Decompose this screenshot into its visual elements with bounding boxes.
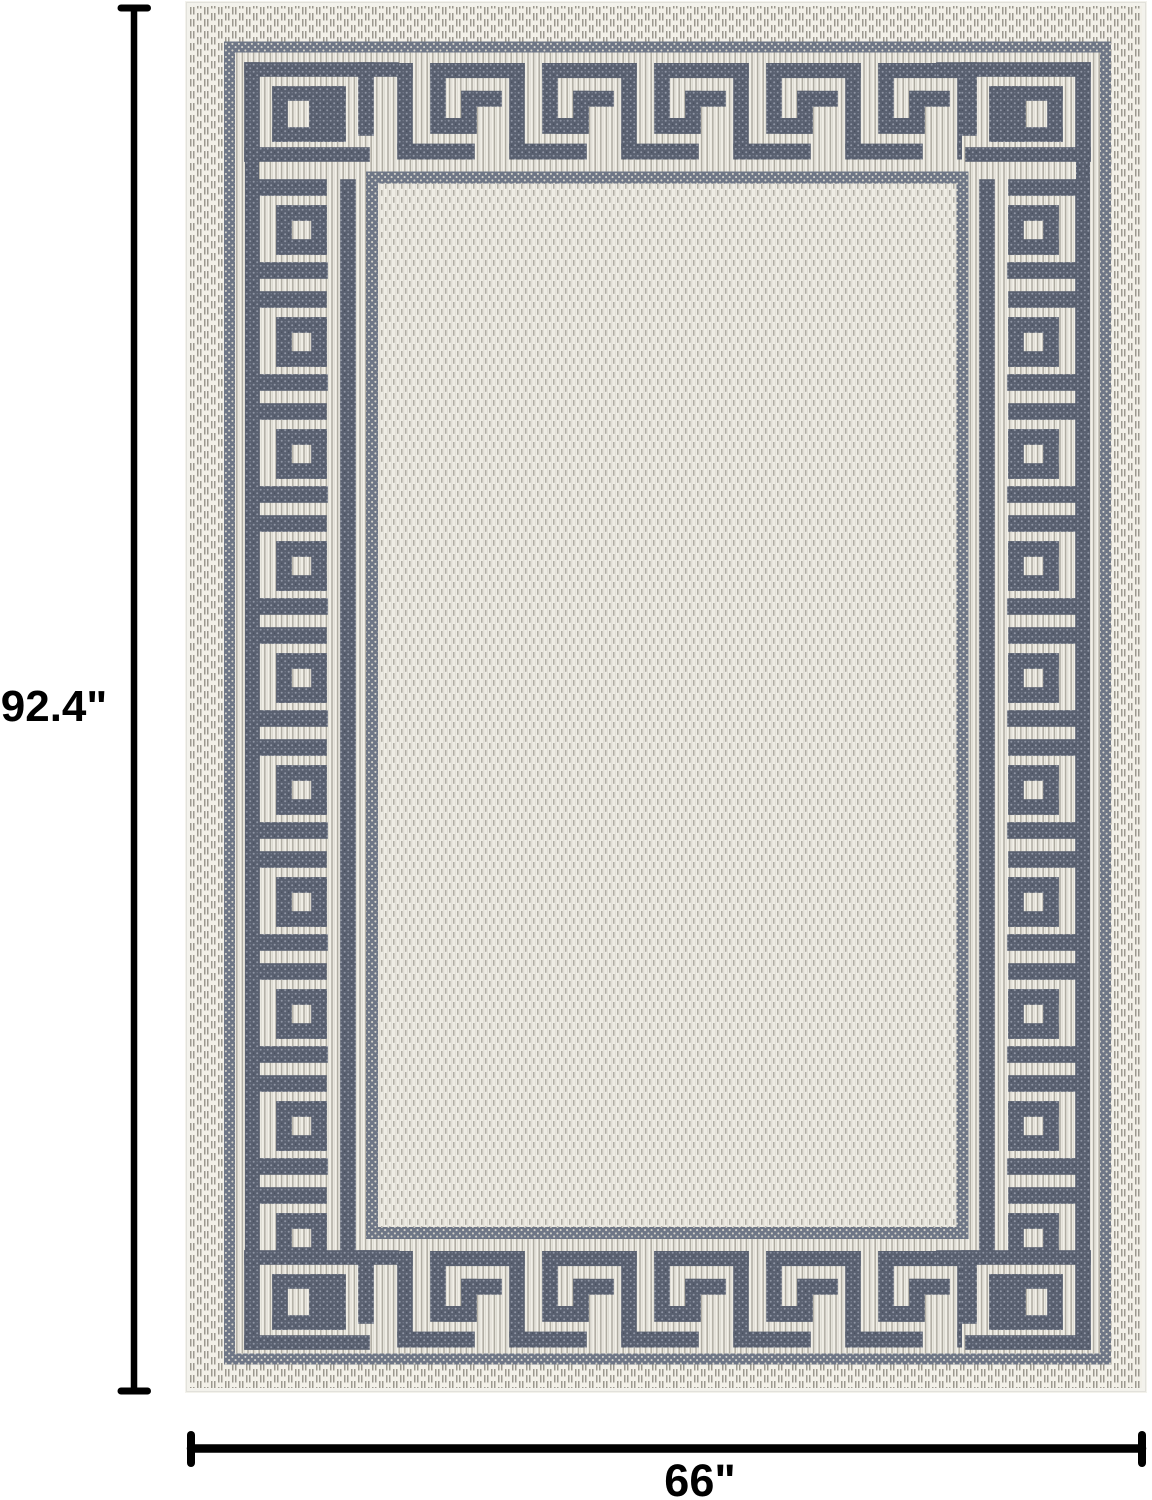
svg-text:66": 66" bbox=[664, 1455, 735, 1500]
svg-text:92.4": 92.4" bbox=[1, 682, 108, 731]
